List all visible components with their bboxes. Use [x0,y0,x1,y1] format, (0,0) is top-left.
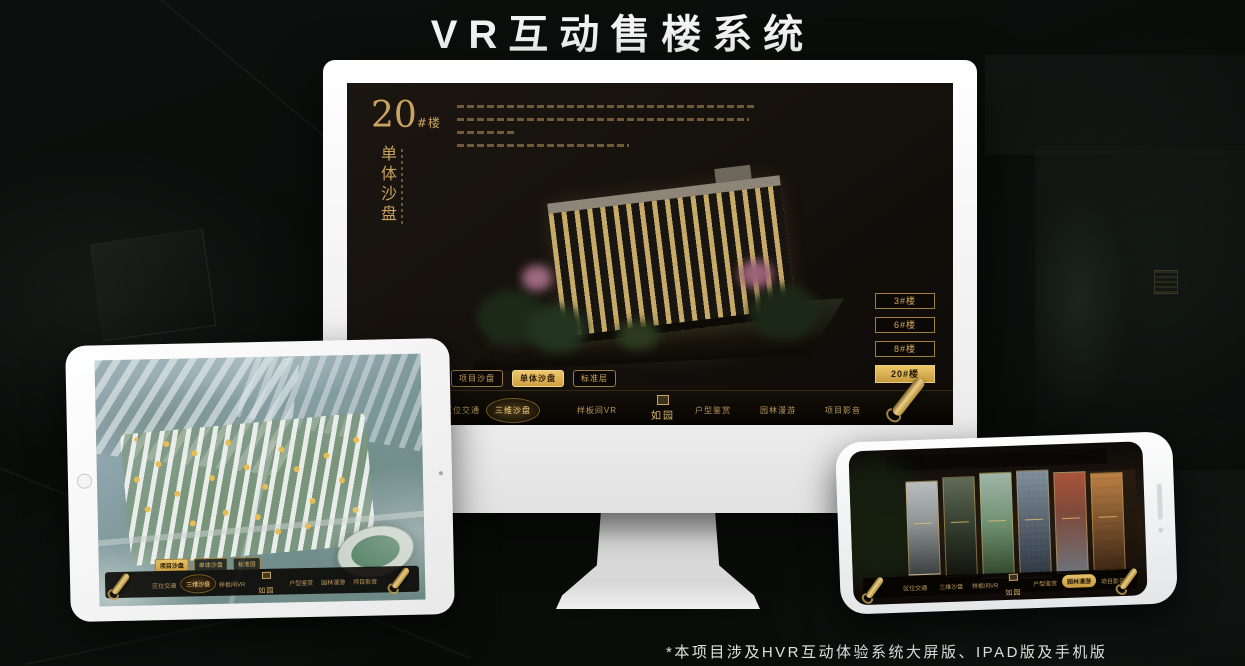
nav-item-garden-tour[interactable]: 园林漫游 [760,405,796,416]
nav-item-unit-plans[interactable]: 户型鉴赏 [1033,578,1057,588]
floor-button-3[interactable]: 3#楼 [875,293,935,309]
nav-item-unit-plans[interactable]: 户型鉴赏 [289,578,313,588]
poster-canvas: VR互动售楼系统 20#楼 单体沙盘 [0,0,1245,666]
brand-logo[interactable]: 如园 [1005,574,1022,601]
background-plaque [90,229,217,342]
floor-button-20[interactable]: 20#楼 [875,365,935,383]
front-camera-icon [1158,528,1163,533]
gallery-card-autumn[interactable] [1053,471,1089,574]
nav-item-showroom-vr[interactable]: 样板间VR [219,579,246,589]
floor-button-6[interactable]: 6#楼 [875,317,935,333]
background-photo-block [1035,150,1245,420]
building-unit: #楼 [417,116,441,130]
page-title: VR互动售楼系统 [0,2,1245,60]
building-number: 20 [371,95,417,136]
phone-speaker-slot [1157,484,1163,520]
nav-item-location-traffic[interactable]: 区位交通 [152,581,176,591]
nav-item-garden-tour[interactable]: 园林漫游 [1062,574,1096,588]
gallery-card-courtyard[interactable] [905,480,940,575]
nav-item-project-media[interactable]: 项目影音 [825,405,861,416]
blossom-tree [739,260,773,288]
bush [617,320,659,350]
scroll-handle-icon[interactable] [391,566,411,589]
gallery-card-landscape[interactable] [979,472,1015,579]
phone-device: 区位交通 三维沙盘 样板间VR 如园 户型鉴赏 园林漫游 项目影音 [835,431,1178,615]
phone-screen: 区位交通 三维沙盘 样板间VR 如园 户型鉴赏 园林漫游 项目影音 [848,441,1147,605]
vertical-english-caption [401,149,403,227]
gallery-card-night-garden[interactable] [942,476,977,577]
scroll-handle-icon[interactable] [111,572,131,595]
brand-logo[interactable]: 如园 [651,395,675,424]
nav-item-3d-sandtable[interactable]: 三维沙盘 [486,398,540,423]
seal-icon [1008,574,1017,581]
monitor-stand [556,512,760,609]
nav-item-3d-sandtable[interactable]: 三维沙盘 [180,574,216,594]
home-button[interactable] [77,474,92,489]
phone-bottom-nav: 区位交通 三维沙盘 样板间VR 如园 户型鉴赏 园林漫游 项目影音 [863,568,1138,598]
brand-logo[interactable]: 如园 [258,572,275,598]
nav-item-unit-plans[interactable]: 户型鉴赏 [695,405,731,416]
seal-icon [261,572,270,579]
nav-item-project-media[interactable]: 项目影音 [353,577,377,587]
tablet-device: 项目沙盘 单体沙盘 标准层 区位交通 三维沙盘 样板间VR 如园 户型鉴赏 园林… [65,338,455,622]
tab-project-sandtable[interactable]: 项目沙盘 [451,370,503,387]
gallery-card-strip [905,466,1126,584]
floor-button-8[interactable]: 8#楼 [875,341,935,357]
sandtable-tabs: 项目沙盘 单体沙盘 标准层 [451,370,616,387]
background-photo-block [985,55,1245,155]
tablet-screen: 项目沙盘 单体沙盘 标准层 区位交通 三维沙盘 样板间VR 如园 户型鉴赏 园林… [94,354,425,607]
blossom-tree [522,265,552,291]
tree [527,305,587,353]
building-heading: 20#楼 [371,95,441,136]
footnote-text: *本项目涉及HVR互动体验系统大屏版、IPAD版及手机版 [666,641,1107,662]
nav-item-location-traffic[interactable]: 区位交通 [903,583,927,593]
tab-single-sandtable[interactable]: 单体沙盘 [512,370,564,387]
tab-standard-floor[interactable]: 标准层 [573,370,616,387]
gallery-card-interior[interactable] [1090,472,1125,571]
tree [749,285,819,340]
description-text-lines [457,105,757,157]
section-title-vertical: 单体沙盘 [375,145,399,225]
nav-item-garden-tour[interactable]: 园林漫游 [321,577,345,587]
gallery-card-building-facade[interactable] [1016,470,1052,579]
scroll-handle-icon[interactable] [865,576,885,600]
nav-item-3d-sandtable[interactable]: 三维沙盘 [939,582,963,592]
floor-button-group: 3#楼 6#楼 8#楼 20#楼 [875,293,935,391]
seal-icon [657,395,669,405]
front-camera-icon [439,471,443,475]
nav-item-showroom-vr[interactable]: 样板间VR [972,580,999,590]
nav-item-showroom-vr[interactable]: 样板间VR [577,405,617,416]
